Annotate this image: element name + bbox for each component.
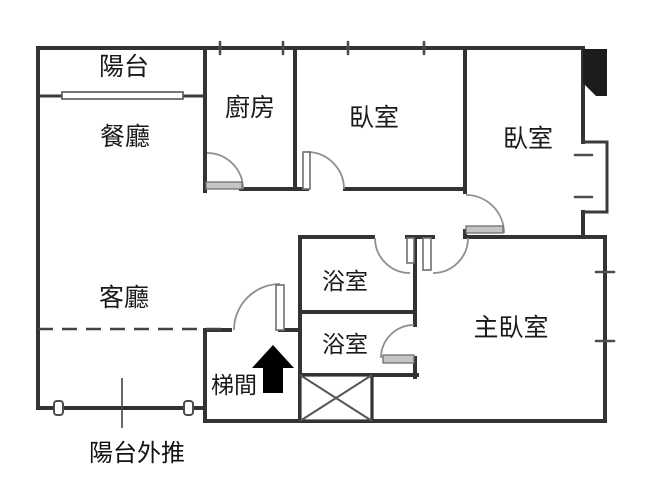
room-label-master-bedroom: 主臥室 [473, 313, 548, 342]
bottom-wall-post-2 [184, 401, 193, 415]
master-door-panel [423, 238, 431, 270]
room-label-kitchen: 廚房 [225, 93, 275, 122]
entry-door-panel [276, 285, 284, 330]
floor-plan: 陽台 餐廳 廚房 臥室 臥室 客廳 浴室 浴室 主臥室 梯間 陽台外推 [0, 0, 666, 489]
floor-plan-drawing: 陽台 餐廳 廚房 臥室 臥室 客廳 浴室 浴室 主臥室 梯間 陽台外推 [0, 0, 666, 489]
room-label-dining: 餐廳 [100, 122, 150, 151]
room-label-balcony: 陽台 [99, 52, 149, 81]
room-label-bedroom-top: 臥室 [349, 103, 399, 132]
annotation-balcony-extension: 陽台外推 [89, 439, 185, 467]
kitchen-door-panel [206, 182, 242, 189]
room-label-bathroom-upper: 浴室 [322, 269, 368, 295]
room-label-living: 客廳 [99, 283, 149, 312]
bathroom-upper-door-panel [407, 238, 414, 263]
elevator-shaft-icon [300, 375, 372, 421]
room-label-stairwell: 梯間 [211, 373, 257, 399]
room-label-bedroom-right: 臥室 [503, 124, 553, 153]
bedroom-top-door-panel [303, 152, 310, 189]
room-label-bathroom-lower: 浴室 [322, 332, 368, 358]
bottom-wall-post-1 [54, 401, 63, 415]
bathroom-lower-door-panel [383, 355, 414, 363]
balcony-window [62, 92, 183, 99]
bedroom-right-door-panel [466, 226, 503, 233]
